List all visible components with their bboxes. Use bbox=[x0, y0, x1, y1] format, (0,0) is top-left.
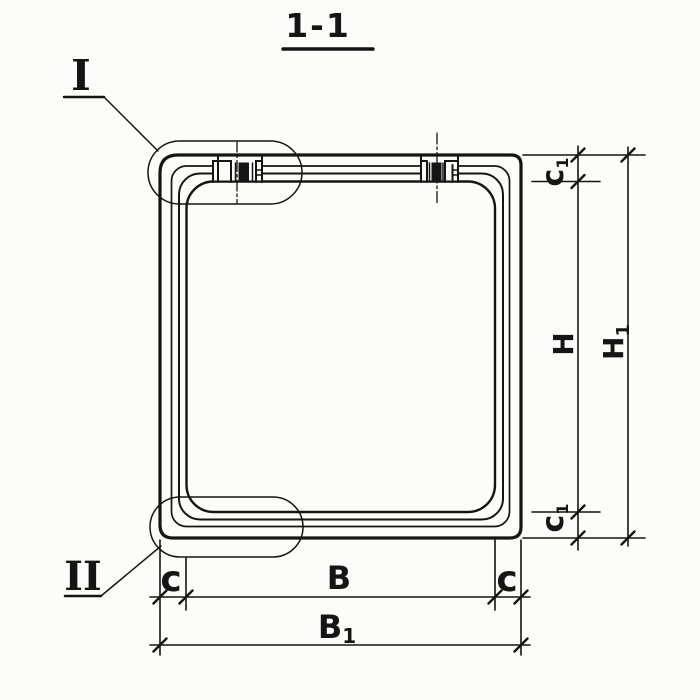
loop-bar-section bbox=[239, 163, 250, 181]
dim-label-overall-width: B1 bbox=[318, 608, 356, 648]
section-drawing: 1-1 I II bbox=[0, 0, 700, 700]
drawing-sheet: 1-1 I II bbox=[0, 0, 700, 700]
inner-face bbox=[187, 182, 496, 513]
detail-marker-1: I bbox=[64, 51, 158, 151]
dim-label-inner-height: H bbox=[547, 332, 580, 355]
dim-label-wall-thickness-left: c bbox=[160, 559, 181, 600]
detail-marker-1-label: I bbox=[71, 51, 91, 100]
detail-marker-2-label: II bbox=[64, 553, 101, 600]
dim-label-sub: 1 bbox=[342, 624, 356, 648]
dim-label-sub: 1 bbox=[613, 324, 634, 337]
dim-label-sub: 1 bbox=[553, 504, 572, 515]
wall-line-1 bbox=[172, 166, 510, 527]
detail-marker-2-leader bbox=[101, 546, 161, 596]
dim-label-main: c bbox=[536, 515, 571, 533]
box-section-outline bbox=[160, 155, 521, 538]
dim-label-slab-thickness-bottom: c1 bbox=[536, 504, 572, 533]
section-title: 1-1 bbox=[285, 6, 351, 45]
dim-label-inner-width: B bbox=[327, 559, 351, 597]
detail-marker-1-leader bbox=[104, 97, 158, 151]
dim-label-main: B bbox=[318, 608, 342, 646]
dim-label-overall-height: H1 bbox=[597, 324, 634, 360]
wall-line-2 bbox=[179, 174, 503, 520]
lifting-loop-right bbox=[421, 133, 458, 203]
dim-label-main: H bbox=[597, 337, 630, 360]
dim-label-main: c bbox=[536, 169, 571, 187]
lifting-loop-left bbox=[213, 141, 263, 203]
detail-marker-2: II bbox=[64, 546, 161, 600]
dim-label-slab-thickness-top: c1 bbox=[536, 158, 572, 187]
dimensions-right: c1 H H1 c1 bbox=[523, 146, 645, 550]
dim-label-wall-thickness-right: c bbox=[496, 559, 517, 600]
outer-contour bbox=[160, 155, 521, 538]
dim-label-sub: 1 bbox=[553, 158, 572, 169]
